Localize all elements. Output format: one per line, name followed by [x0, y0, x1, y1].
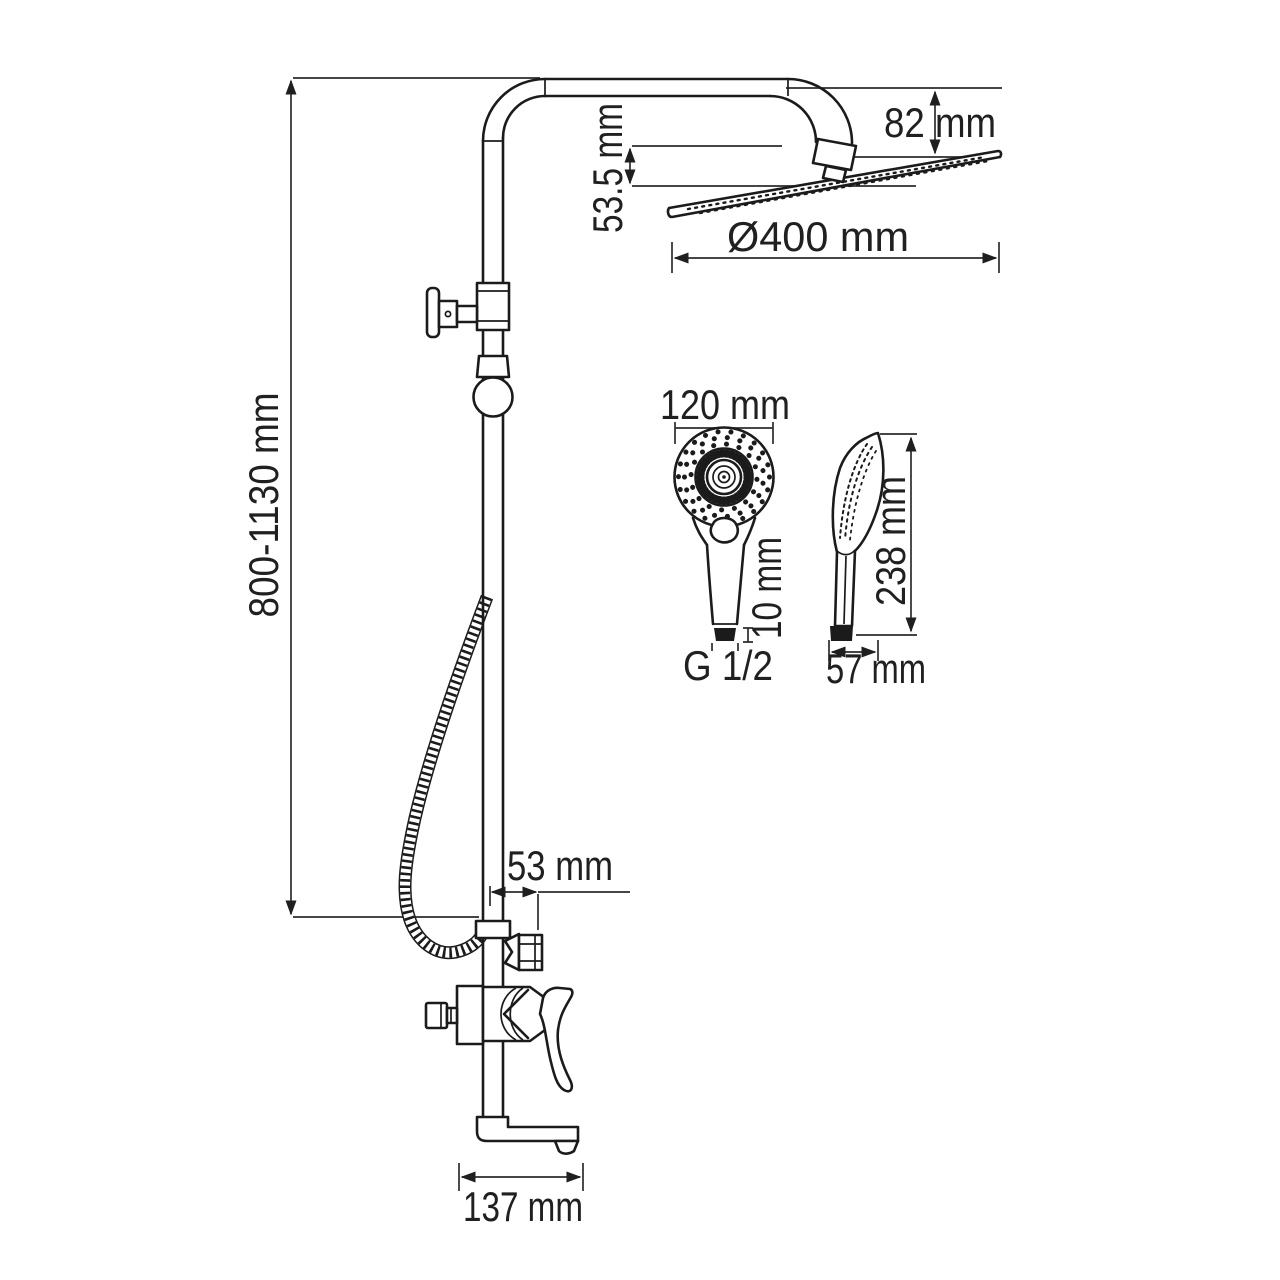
label-thread-size: G 1/2	[683, 642, 773, 689]
mixer-backplate	[457, 986, 483, 1044]
label-head-drop: 82 mm	[884, 99, 996, 146]
spout-nozzle	[555, 1141, 578, 1154]
head-connector-nut	[813, 139, 856, 170]
handshower-handle	[707, 545, 713, 624]
labels: 800-1130 mm 82 mm 53.5 mm Ø400 mm 120 mm…	[240, 99, 996, 1230]
thread-g12	[714, 628, 736, 641]
mixer-assembly	[426, 986, 572, 1091]
technical-drawing-canvas: 800-1130 mm 82 mm 53.5 mm Ø400 mm 120 mm…	[0, 0, 1280, 1280]
ball-joint	[474, 378, 513, 417]
side-view-connector	[830, 626, 853, 641]
lower-collar	[476, 921, 510, 938]
slider-bracket	[477, 283, 509, 330]
label-spout-length: 137 mm	[463, 1183, 583, 1230]
mixer-lever-handle	[540, 988, 572, 1091]
bath-spout	[477, 1117, 578, 1154]
label-handshower-length: 238 mm	[867, 476, 914, 606]
mixer-body	[483, 987, 545, 1041]
rain-shower-head	[668, 139, 1001, 217]
label-outlet-offset: 53 mm	[507, 842, 613, 889]
mixer-side-knob	[426, 1003, 447, 1028]
shower-hose	[405, 597, 487, 953]
label-head-diameter: Ø400 mm	[727, 213, 909, 260]
label-head-connector-height: 53.5 mm	[584, 103, 631, 233]
hose-outlet	[505, 934, 519, 970]
label-handshower-diameter: 120 mm	[660, 381, 790, 428]
pipe-coupling	[477, 356, 509, 377]
slider-knob	[427, 288, 439, 337]
label-height-range: 800-1130 mm	[240, 393, 287, 618]
label-handshower-depth: 57 mm	[826, 645, 926, 692]
mode-button	[711, 518, 738, 542]
label-thread-length: 10 mm	[743, 537, 790, 639]
